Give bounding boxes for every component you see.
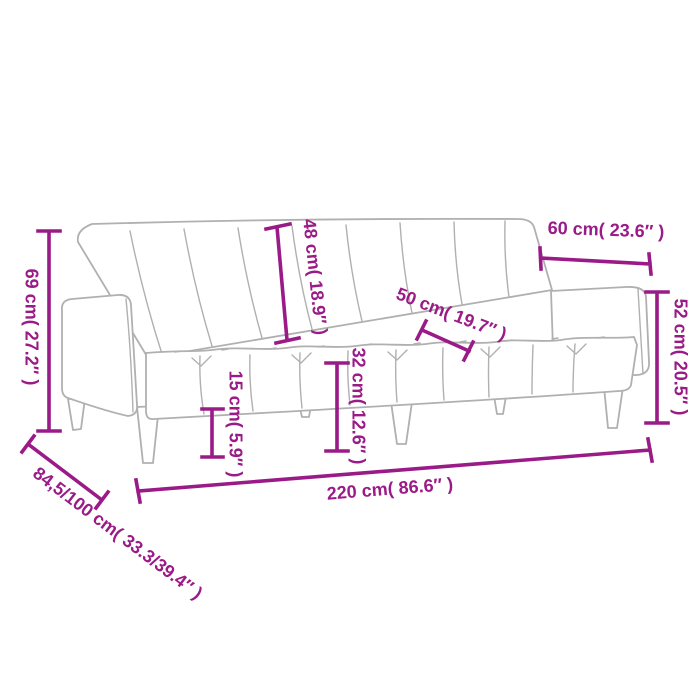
- dim-seat-height-label: 32 cm( 12.6″ ): [348, 348, 368, 465]
- dimension-diagram-svg: 69 cm( 27.2″ ) 48 cm( 18.9″ ) 60 cm( 23.…: [0, 0, 700, 700]
- sofa-leg: [391, 402, 412, 444]
- dim-overall-height-label: 69 cm( 27.2″ ): [21, 269, 41, 386]
- dim-top-depth: 60 cm( 23.6″ ): [540, 218, 665, 274]
- dim-overall-depth: 84,5/100 cm( 33.3/39.4″ ): [22, 436, 206, 603]
- dim-armrest-height: 52 cm( 20.5″ ): [646, 292, 690, 423]
- sofa-leg: [604, 387, 623, 428]
- dim-armrest-height-label: 52 cm( 20.5″ ): [670, 299, 690, 416]
- sofa-armrest-left: [62, 295, 137, 416]
- dim-overall-width-label: 220 cm( 86.6″ ): [326, 474, 454, 504]
- dim-overall-height: 69 cm( 27.2″ ): [21, 231, 60, 431]
- dim-overall-depth-label: 84,5/100 cm( 33.3/39.4″ ): [29, 463, 206, 603]
- dim-leg-height-label: 15 cm( 5.9″ ): [225, 371, 245, 478]
- dim-top-depth-label: 60 cm( 23.6″ ): [547, 218, 664, 242]
- dim-top-depth-line: [540, 248, 651, 274]
- product-dimension-diagram: 69 cm( 27.2″ ) 48 cm( 18.9″ ) 60 cm( 23.…: [0, 0, 700, 700]
